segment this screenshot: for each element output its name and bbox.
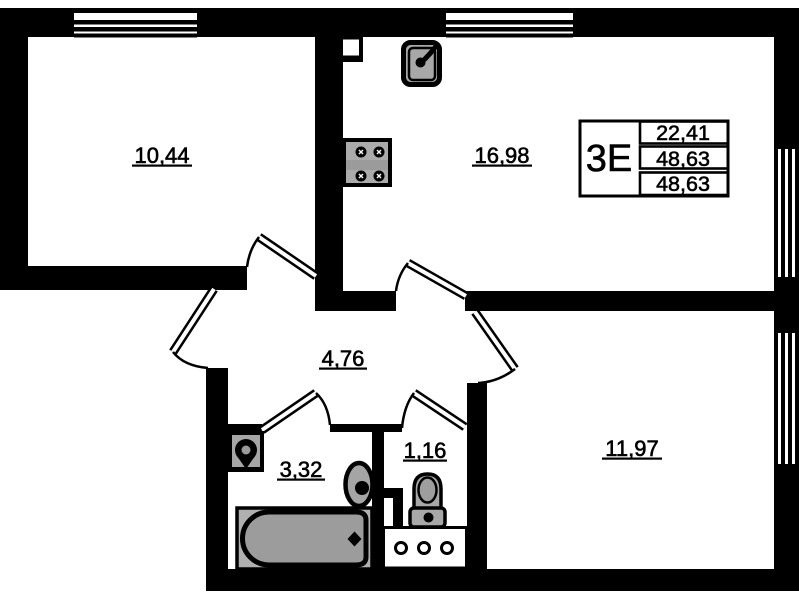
svg-text:10,44: 10,44 xyxy=(134,143,189,168)
svg-text:48,63: 48,63 xyxy=(656,147,710,171)
svg-text:16,98: 16,98 xyxy=(474,143,529,168)
svg-text:1,16: 1,16 xyxy=(404,438,447,463)
svg-text:3Е: 3Е xyxy=(586,138,632,180)
svg-text:22,41: 22,41 xyxy=(656,121,710,145)
svg-text:3,32: 3,32 xyxy=(280,457,323,482)
svg-text:4,76: 4,76 xyxy=(322,346,365,371)
svg-text:11,97: 11,97 xyxy=(605,436,658,461)
svg-text:48,63: 48,63 xyxy=(656,172,710,196)
